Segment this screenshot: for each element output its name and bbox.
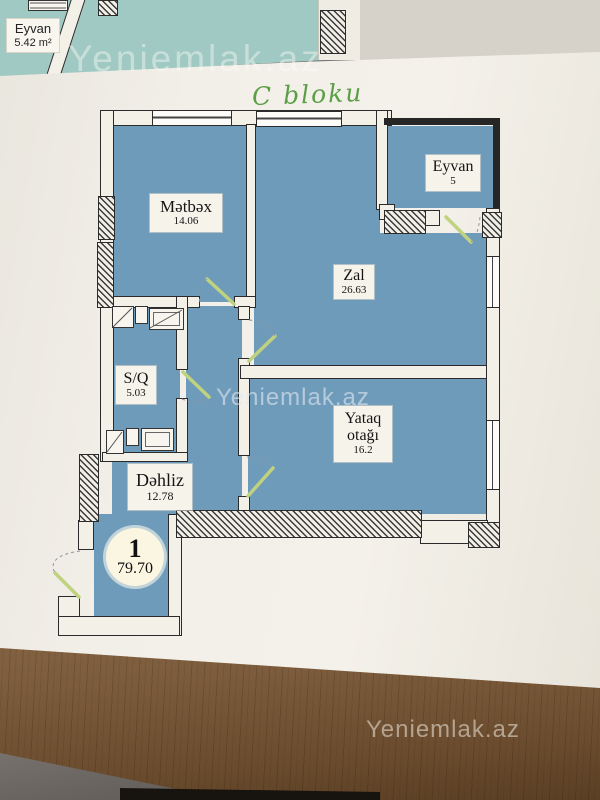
hatch-wall-corridor <box>79 454 99 522</box>
room-name: Zal <box>334 268 374 285</box>
toilet-icon <box>106 430 124 454</box>
secondary-plan-hatch-wall <box>320 10 346 54</box>
hatch-wall-bottom <box>176 510 422 538</box>
window-icon <box>486 420 500 490</box>
room-area: 16.2 <box>334 445 392 457</box>
sink-icon <box>135 306 148 324</box>
background-top-right <box>355 0 600 62</box>
secondary-plan-hatch-wall <box>98 0 118 16</box>
room-area: 5 <box>426 176 480 188</box>
room-name: Yataq otağı <box>334 411 392 445</box>
vanity-icon <box>141 428 174 451</box>
watermark-center: Yeniemlak.az <box>216 384 370 412</box>
room-name: Dəhliz <box>128 471 192 490</box>
room-name: Mətbəx <box>150 198 222 216</box>
fixture-inner <box>145 432 170 447</box>
room-label-dehliz: Dəhliz 12.78 <box>128 464 192 510</box>
hatch-wall-corner <box>482 212 502 238</box>
window-icon <box>256 111 342 127</box>
room-label-metbex: Mətbəx 14.06 <box>150 194 222 232</box>
room-name: S/Q <box>116 371 156 388</box>
unit-number-badge: 1 79.70 <box>106 528 164 586</box>
hatch-wall-left <box>97 242 114 308</box>
room-area: 14.06 <box>150 216 222 228</box>
room-area: 26.63 <box>334 285 374 297</box>
room-label-zal: Zal 26.63 <box>334 265 374 299</box>
wall-jamb <box>424 210 440 226</box>
room-zal <box>378 233 488 367</box>
window-icon <box>152 110 232 126</box>
wall-zal-yataq <box>240 365 490 379</box>
room-area: 12.78 <box>128 490 192 503</box>
radiator-icon <box>28 0 68 11</box>
watermark-top: Yeniemlak.az <box>68 38 323 80</box>
room-label-yataq: Yataq otağı 16.2 <box>334 406 392 462</box>
hatch-wall-corner <box>468 522 500 548</box>
room-area: 5.03 <box>116 388 156 400</box>
room-area: 5.42 m² <box>7 37 59 49</box>
unit-number: 1 <box>106 537 164 560</box>
hatch-wall-left <box>98 196 115 240</box>
room-label-sq: S/Q 5.03 <box>116 366 156 404</box>
room-label-eyvan-secondary: Eyvan 5.42 m² <box>6 18 60 53</box>
room-label-eyvan: Eyvan 5 <box>426 155 480 191</box>
room-name: Eyvan <box>426 159 480 176</box>
wall-dehliz-zal <box>238 306 250 320</box>
handwritten-block-note: C bloku <box>252 78 364 111</box>
wall-corridor-bottom <box>58 616 180 636</box>
room-name: Eyvan <box>7 22 59 36</box>
fixture-inner <box>153 312 180 326</box>
wall-eyvan-right <box>493 118 500 210</box>
washing-machine-icon <box>149 308 184 330</box>
wall-eyvan-top <box>384 118 500 125</box>
room-zal <box>254 124 380 367</box>
watermark-bottom: Yeniemlak.az <box>366 716 520 744</box>
wall-corridor-left <box>78 520 94 550</box>
bathtub-icon <box>112 306 134 328</box>
sink-icon <box>126 428 139 446</box>
floorplan-photo: Eyvan 5.42 m² <box>0 0 600 800</box>
window-icon <box>486 256 500 308</box>
hatch-wall-eyvan <box>384 210 426 234</box>
wall-metbex-zal <box>246 124 256 306</box>
total-area: 79.70 <box>106 561 164 577</box>
wall-eyvan-left <box>376 110 388 210</box>
